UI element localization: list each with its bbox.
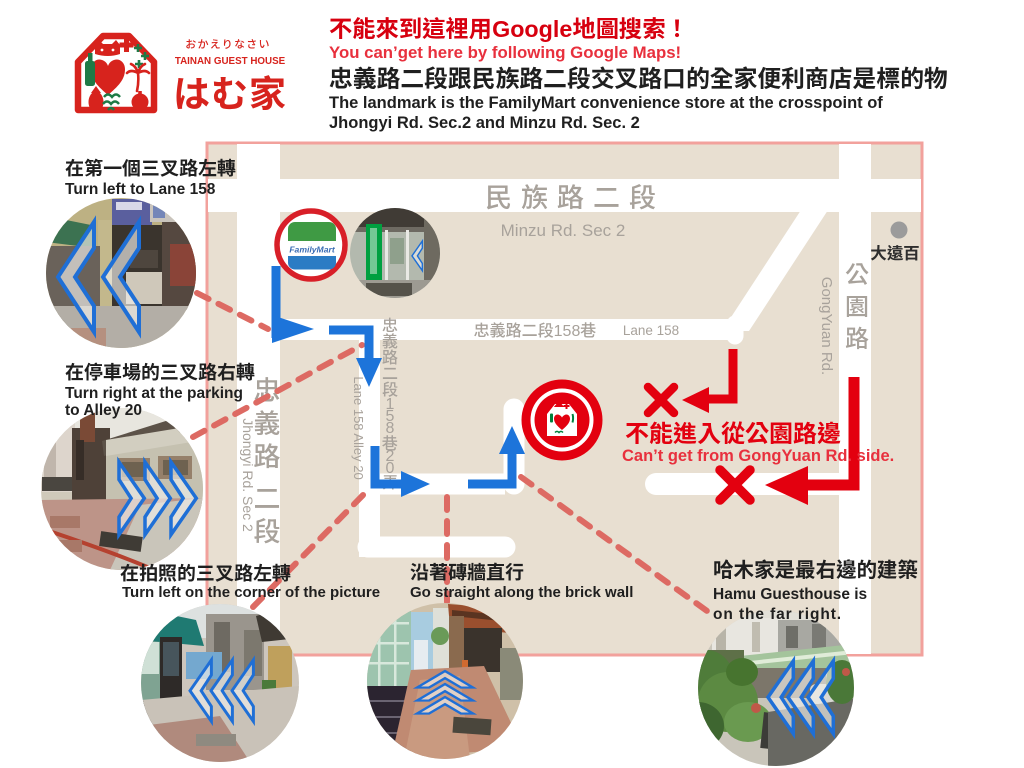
svg-text:on the far right.: on the far right. bbox=[713, 606, 842, 623]
svg-text:不能進入從公園路邊: 不能進入從公園路邊 bbox=[625, 414, 841, 449]
svg-text:FamilyMart: FamilyMart bbox=[289, 245, 336, 255]
svg-text:哈木家是最右邊的建築: 哈木家是最右邊的建築 bbox=[713, 553, 918, 583]
svg-text:to Alley 20: to Alley 20 bbox=[65, 402, 142, 419]
svg-text:在拍照的三叉路左轉: 在拍照的三叉路左轉 bbox=[120, 559, 291, 586]
svg-text:在停車場的三叉路右轉: 在停車場的三叉路右轉 bbox=[65, 358, 255, 385]
svg-text:Go straight along the brick wa: Go straight along the brick wall bbox=[410, 584, 633, 601]
svg-text:民族路二段: 民族路二段 bbox=[485, 176, 665, 215]
svg-text:公: 公 bbox=[845, 255, 869, 290]
svg-text:Lane 158: Lane 158 bbox=[623, 323, 679, 338]
svg-text:Jhongyi Rd. Sec 2: Jhongyi Rd. Sec 2 bbox=[240, 418, 256, 532]
svg-text:Turn left to Lane 158: Turn left to Lane 158 bbox=[65, 181, 216, 198]
svg-text:Can’t get from GongYuan Rd. si: Can’t get from GongYuan Rd. side. bbox=[622, 447, 894, 465]
svg-text:おかえりなさい: おかえりなさい bbox=[185, 36, 270, 52]
svg-text:園: 園 bbox=[845, 287, 869, 322]
svg-text:Turn right at the parking: Turn right at the parking bbox=[65, 385, 243, 402]
svg-text:忠義路二段跟民族路二段交叉路口的全家便利商店是標的物: 忠義路二段跟民族路二段交叉路口的全家便利商店是標的物 bbox=[329, 59, 948, 94]
svg-text:はむ家: はむ家 bbox=[173, 64, 287, 118]
svg-text:Minzu Rd. Sec 2: Minzu Rd. Sec 2 bbox=[501, 221, 626, 240]
svg-text:路: 路 bbox=[845, 319, 869, 354]
svg-text:忠義路二段158巷: 忠義路二段158巷 bbox=[474, 317, 597, 341]
svg-text:沿著磚牆直行: 沿著磚牆直行 bbox=[410, 558, 524, 585]
svg-text:Jhongyi Rd. Sec.2 and Minzu Rd: Jhongyi Rd. Sec.2 and Minzu Rd. Sec. 2 bbox=[329, 114, 640, 132]
svg-text:路: 路 bbox=[254, 435, 281, 474]
svg-text:段: 段 bbox=[254, 510, 281, 549]
svg-text:Turn left on the corner of the: Turn left on the corner of the picture bbox=[122, 584, 380, 601]
svg-text:GongYuan Rd.: GongYuan Rd. bbox=[818, 277, 835, 375]
svg-text:在第一個三叉路左轉: 在第一個三叉路左轉 bbox=[65, 154, 236, 181]
svg-text:Hamu Guesthouse is: Hamu Guesthouse is bbox=[713, 586, 867, 603]
svg-text:大遠百: 大遠百 bbox=[870, 240, 920, 264]
svg-text:不能來到這裡用Google地圖搜索！: 不能來到這裡用Google地圖搜索！ bbox=[329, 10, 689, 44]
svg-text:Lane 158 Alley 20: Lane 158 Alley 20 bbox=[351, 376, 366, 479]
svg-text:The landmark is the FamilyMart: The landmark is the FamilyMart convenien… bbox=[329, 94, 883, 112]
